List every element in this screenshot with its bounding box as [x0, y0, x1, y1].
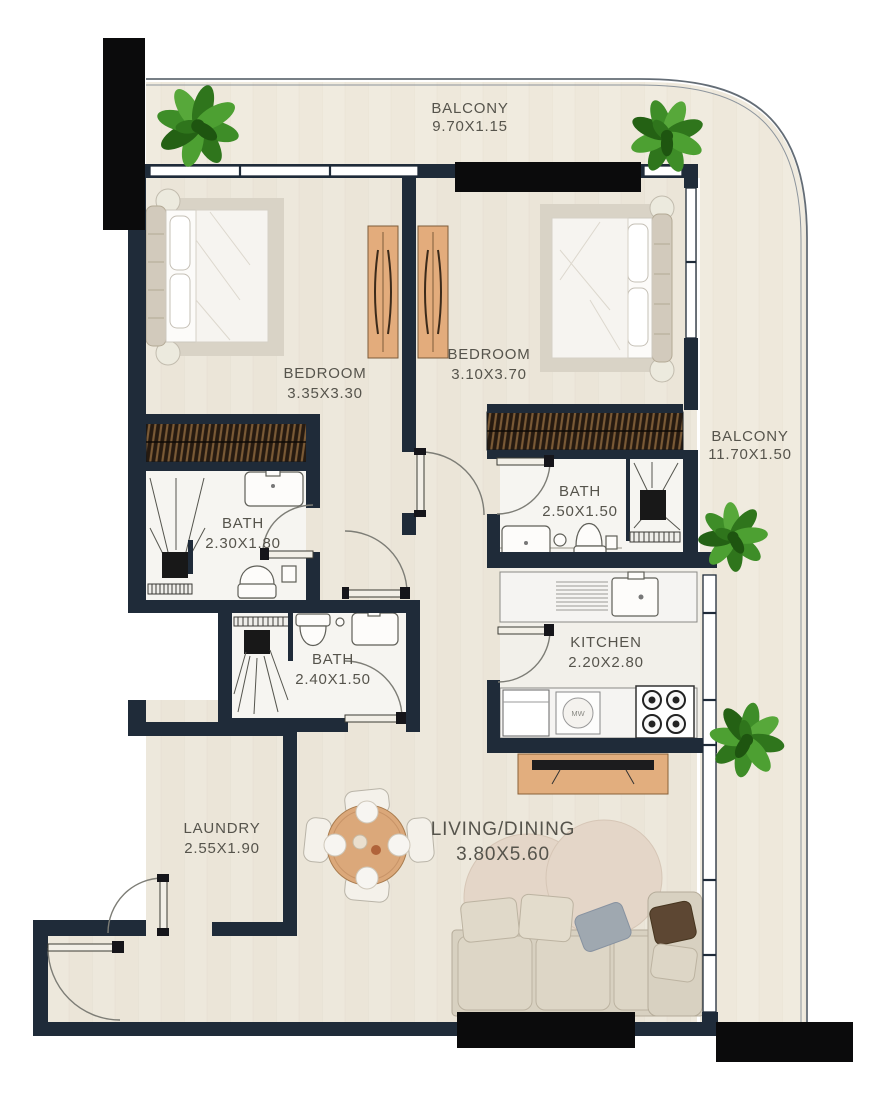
floor-plan-page: MW	[0, 0, 893, 1100]
living-dining-dims: 3.80X5.60	[456, 844, 550, 865]
floor-plan-drawing: MW	[0, 0, 893, 1100]
balcony-top-dims: 9.70X1.15	[432, 118, 508, 135]
laundry-name: LAUNDRY	[183, 820, 260, 837]
bedroom-left-dims: 3.35X3.30	[287, 385, 363, 402]
bath-middle-dims: 2.40X1.50	[295, 671, 371, 688]
exterior-notch	[128, 613, 218, 700]
living-dining-name: LIVING/DINING	[431, 819, 575, 840]
bath-left-dims: 2.30X1.80	[205, 535, 281, 552]
laundry-dims: 2.55X1.90	[184, 840, 260, 857]
bar-bottom-center	[457, 1012, 635, 1048]
bath-left-name: BATH	[222, 515, 264, 532]
living-window-band	[703, 575, 716, 1012]
stove	[636, 686, 694, 738]
kitchen-sink	[612, 578, 658, 616]
balcony-right-dims: 11.70X1.50	[708, 446, 792, 463]
bed-left	[146, 189, 284, 365]
fridge	[503, 690, 549, 736]
column-top-left	[103, 38, 145, 230]
bath-middle-name: BATH	[312, 651, 354, 668]
bedroom-right-name: BEDROOM	[447, 346, 530, 363]
bar-bottom-right	[716, 1022, 853, 1062]
bedroom-right-dims: 3.10X3.70	[451, 366, 527, 383]
bedroom-left-window	[150, 166, 418, 176]
balcony-top-name: BALCONY	[431, 100, 508, 117]
bedroom-left-name: BEDROOM	[283, 365, 366, 382]
bath-right-name: BATH	[559, 483, 601, 500]
tv-console	[518, 754, 668, 794]
kitchen-dims: 2.20X2.80	[568, 654, 644, 671]
bath-right-dims: 2.50X1.50	[542, 503, 618, 520]
header-bedroom-right	[455, 162, 641, 192]
kitchen-name: KITCHEN	[570, 634, 641, 651]
balcony-right-name: BALCONY	[711, 428, 788, 445]
microwave-label: MW	[571, 709, 585, 718]
bed-right	[540, 196, 674, 382]
